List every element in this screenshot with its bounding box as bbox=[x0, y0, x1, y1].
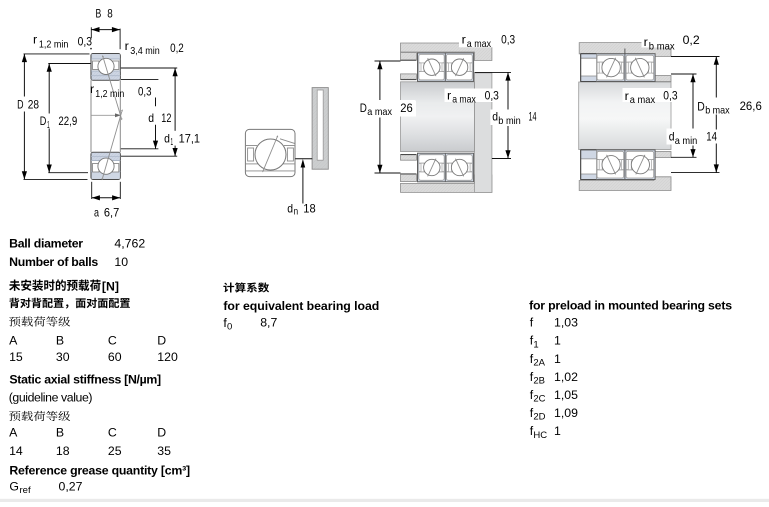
svg-text:ref: ref bbox=[20, 485, 31, 496]
svg-text:d: d bbox=[669, 129, 675, 143]
svg-text:25: 25 bbox=[108, 444, 122, 458]
svg-text:14: 14 bbox=[706, 130, 717, 144]
svg-text:n: n bbox=[294, 206, 299, 218]
svg-text:r: r bbox=[125, 39, 129, 53]
svg-text:b max: b max bbox=[705, 104, 730, 116]
svg-text:12: 12 bbox=[161, 111, 171, 125]
svg-text:[N]: [N] bbox=[102, 280, 119, 294]
svg-text:8: 8 bbox=[107, 7, 113, 21]
svg-text:4,762: 4,762 bbox=[114, 237, 145, 251]
svg-text:17,1: 17,1 bbox=[179, 131, 201, 145]
svg-text:1: 1 bbox=[171, 136, 174, 148]
svg-text:0,27: 0,27 bbox=[59, 479, 83, 493]
svg-text:d: d bbox=[164, 131, 170, 145]
svg-text:2C: 2C bbox=[533, 394, 545, 405]
svg-text:D: D bbox=[697, 99, 705, 113]
svg-text:120: 120 bbox=[157, 350, 178, 364]
svg-text:Number of balls: Number of balls bbox=[9, 255, 98, 269]
svg-text:B: B bbox=[56, 333, 64, 347]
svg-text:Reference grease quantity [cm³: Reference grease quantity [cm³] bbox=[9, 464, 190, 478]
svg-text:a: a bbox=[94, 205, 99, 219]
svg-text:r: r bbox=[625, 89, 629, 103]
svg-text:26,6: 26,6 bbox=[740, 99, 763, 113]
svg-text:D: D bbox=[17, 97, 24, 111]
svg-text:for preload in mounted bearing: for preload in mounted bearing sets bbox=[529, 298, 732, 312]
svg-text:HC: HC bbox=[533, 430, 547, 441]
svg-text:14: 14 bbox=[9, 444, 23, 458]
svg-text:r: r bbox=[90, 82, 94, 96]
svg-text:0,3: 0,3 bbox=[501, 32, 515, 46]
svg-text:0,3: 0,3 bbox=[663, 89, 678, 103]
svg-text:0,3: 0,3 bbox=[485, 89, 500, 103]
svg-text:1,05: 1,05 bbox=[554, 388, 578, 402]
svg-text:2A: 2A bbox=[533, 357, 545, 368]
svg-text:b min: b min bbox=[498, 115, 521, 127]
svg-text:14: 14 bbox=[529, 109, 537, 123]
svg-text:0,3: 0,3 bbox=[78, 34, 93, 48]
svg-text:A: A bbox=[9, 426, 18, 440]
svg-text:A: A bbox=[9, 333, 18, 347]
svg-text:1: 1 bbox=[554, 352, 561, 366]
svg-text:2B: 2B bbox=[533, 376, 545, 387]
svg-text:G: G bbox=[9, 479, 19, 493]
svg-text:C: C bbox=[108, 426, 117, 440]
svg-text:26: 26 bbox=[400, 101, 413, 115]
svg-text:18: 18 bbox=[56, 444, 70, 458]
svg-text:D: D bbox=[157, 333, 166, 347]
svg-text:Ball diameter: Ball diameter bbox=[9, 237, 83, 251]
svg-text:r: r bbox=[644, 35, 648, 49]
svg-text:d: d bbox=[148, 111, 154, 125]
svg-text:a min: a min bbox=[675, 135, 698, 147]
svg-text:d: d bbox=[287, 202, 293, 216]
svg-text:10: 10 bbox=[114, 255, 128, 269]
svg-text:18: 18 bbox=[303, 202, 316, 216]
svg-text:1: 1 bbox=[47, 119, 50, 131]
svg-text:b max: b max bbox=[649, 41, 675, 53]
svg-text:6,7: 6,7 bbox=[104, 205, 120, 219]
svg-text:0: 0 bbox=[227, 322, 232, 333]
svg-text:r: r bbox=[462, 33, 466, 47]
svg-text:0,2: 0,2 bbox=[683, 33, 700, 47]
svg-text:d: d bbox=[492, 109, 498, 123]
svg-text:15: 15 bbox=[9, 350, 23, 364]
svg-text:1,2 min: 1,2 min bbox=[95, 88, 124, 100]
svg-text:8,7: 8,7 bbox=[260, 316, 277, 330]
svg-text:Static axial stiffness [N/µm]: Static axial stiffness [N/µm] bbox=[9, 373, 161, 387]
svg-text:D: D bbox=[360, 101, 367, 115]
svg-text:22,9: 22,9 bbox=[58, 114, 77, 128]
svg-text:1,02: 1,02 bbox=[554, 370, 578, 384]
svg-text:B: B bbox=[56, 426, 64, 440]
svg-text:1: 1 bbox=[554, 424, 561, 438]
svg-text:a max: a max bbox=[367, 106, 392, 118]
svg-text:D: D bbox=[40, 114, 47, 128]
svg-text:2D: 2D bbox=[533, 412, 545, 423]
svg-text:r: r bbox=[33, 33, 37, 47]
svg-text:60: 60 bbox=[108, 350, 122, 364]
svg-text:B: B bbox=[96, 7, 102, 21]
svg-text:f: f bbox=[530, 316, 534, 330]
svg-text:C: C bbox=[108, 333, 117, 347]
svg-text:a max: a max bbox=[452, 93, 476, 105]
svg-text:0,2: 0,2 bbox=[170, 41, 184, 55]
svg-text:30: 30 bbox=[56, 350, 70, 364]
svg-text:1,2 min: 1,2 min bbox=[39, 38, 69, 50]
svg-text:1: 1 bbox=[554, 334, 561, 348]
svg-text:D: D bbox=[157, 426, 166, 440]
svg-text:28: 28 bbox=[28, 97, 40, 111]
svg-text:1,03: 1,03 bbox=[554, 316, 578, 330]
svg-text:(guideline value): (guideline value) bbox=[9, 391, 93, 405]
svg-text:0,3: 0,3 bbox=[138, 85, 152, 99]
svg-text:3,4 min: 3,4 min bbox=[130, 45, 160, 57]
svg-text:1: 1 bbox=[533, 339, 538, 350]
svg-text:a max: a max bbox=[630, 94, 656, 106]
svg-text:for equivalent bearing load: for equivalent bearing load bbox=[223, 299, 379, 313]
svg-text:1,09: 1,09 bbox=[554, 406, 578, 420]
svg-text:a max: a max bbox=[467, 38, 492, 50]
svg-text:r: r bbox=[447, 88, 451, 102]
svg-text:35: 35 bbox=[157, 444, 171, 458]
